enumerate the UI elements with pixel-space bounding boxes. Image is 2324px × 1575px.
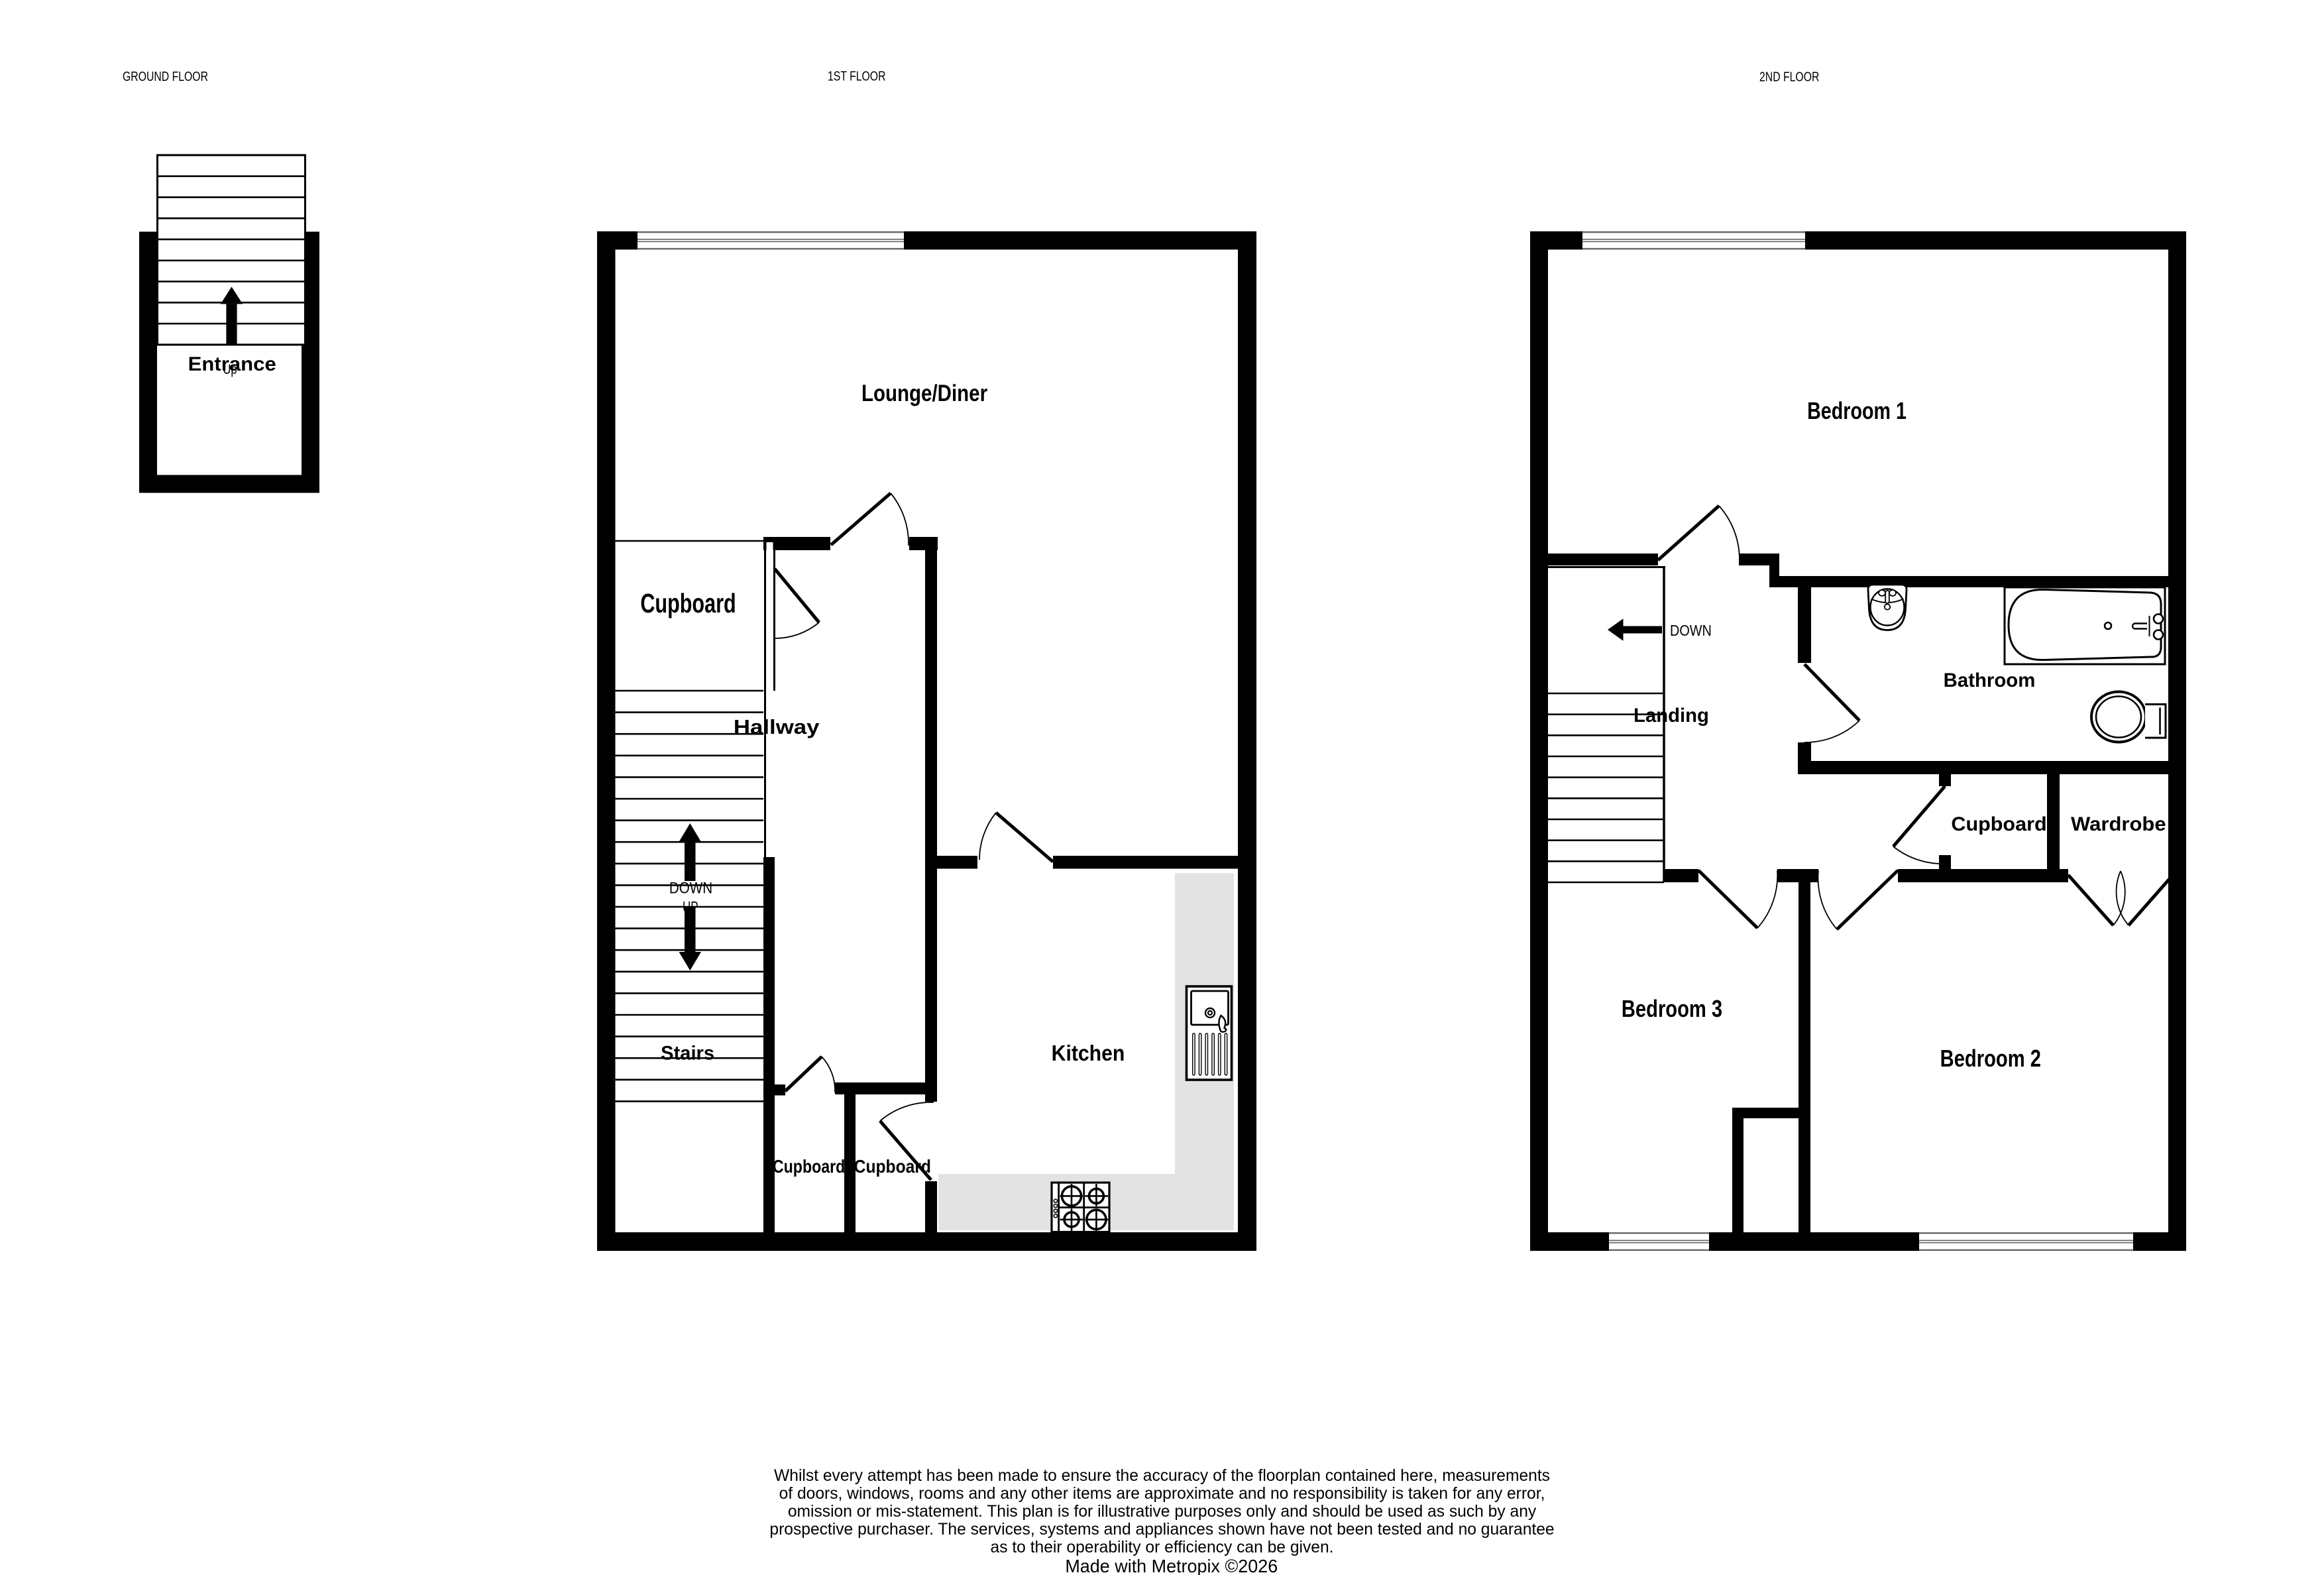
svg-text:Lounge/Diner: Lounge/Diner: [861, 380, 987, 406]
svg-text:Whilst every attempt has been: Whilst every attempt has been made to en…: [774, 1467, 1550, 1485]
svg-text:Bedroom 1: Bedroom 1: [1807, 398, 1907, 424]
svg-text:DOWN: DOWN: [669, 879, 712, 897]
svg-text:Kitchen: Kitchen: [1052, 1041, 1125, 1066]
svg-text:Wardrobe: Wardrobe: [2071, 813, 2166, 835]
svg-text:Bedroom 2: Bedroom 2: [1940, 1045, 2041, 1072]
svg-text:DOWN: DOWN: [1670, 622, 1712, 640]
svg-text:1ST FLOOR: 1ST FLOOR: [828, 69, 885, 84]
svg-text:Cupboard: Cupboard: [1951, 813, 2046, 835]
svg-text:of doors, windows, rooms and a: of doors, windows, rooms and any other i…: [779, 1485, 1545, 1503]
svg-text:omission or mis-statement. Thi: omission or mis-statement. This plan is …: [788, 1503, 1537, 1521]
svg-text:2ND FLOOR: 2ND FLOOR: [1759, 70, 1819, 84]
svg-text:Landing: Landing: [1633, 705, 1709, 727]
svg-text:Cupboard: Cupboard: [640, 588, 736, 618]
svg-text:Hallway: Hallway: [734, 715, 820, 738]
svg-text:Bathroom: Bathroom: [1944, 670, 2036, 691]
svg-text:Cupboard: Cupboard: [773, 1157, 845, 1177]
svg-text:prospective purchaser. The ser: prospective purchaser. The services, sys…: [769, 1521, 1554, 1539]
svg-text:Bedroom 3: Bedroom 3: [1622, 995, 1722, 1022]
svg-text:Cupboard: Cupboard: [854, 1156, 931, 1177]
svg-text:UP: UP: [683, 899, 698, 915]
svg-text:Stairs: Stairs: [661, 1042, 714, 1064]
svg-text:GROUND FLOOR: GROUND FLOOR: [123, 69, 208, 84]
svg-text:Made with Metropix ©2026: Made with Metropix ©2026: [1065, 1556, 1278, 1575]
svg-text:as to their operability or eff: as to their operability or efficiency ca…: [991, 1539, 1334, 1556]
svg-text:Up: Up: [223, 362, 237, 377]
